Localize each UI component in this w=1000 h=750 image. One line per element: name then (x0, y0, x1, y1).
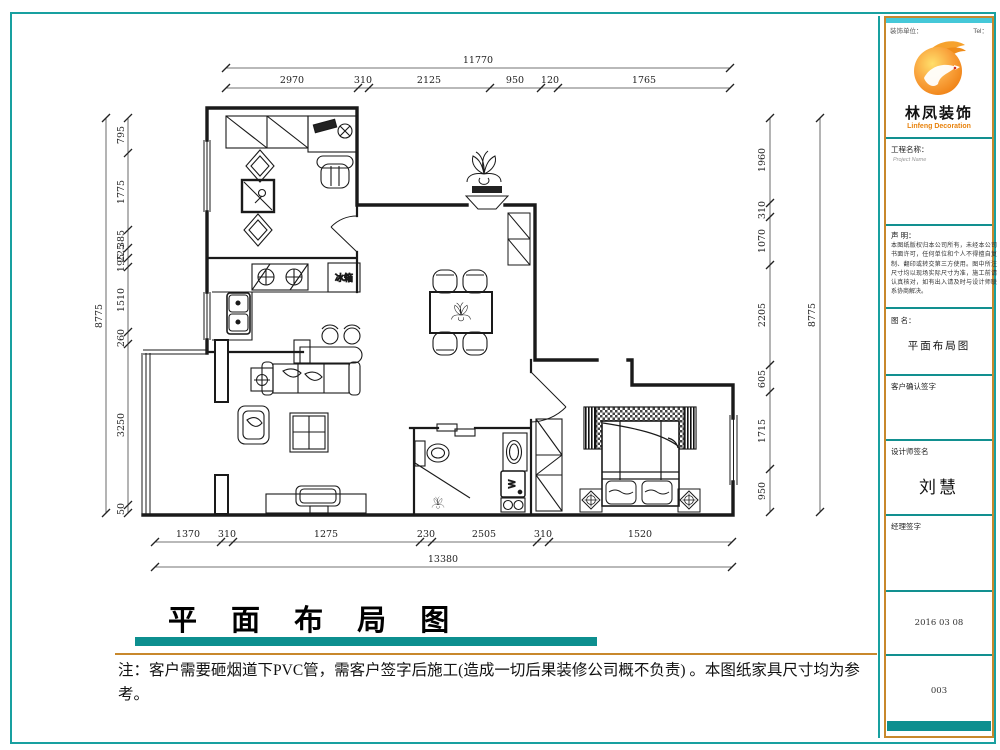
sliding-door-symbol (437, 424, 475, 436)
dim-label: 230 (417, 529, 435, 540)
desk-symbol (308, 116, 357, 152)
divider (886, 224, 992, 226)
floor-cushion-symbol (244, 150, 274, 246)
bedroom-wardrobe (536, 419, 562, 511)
divider (886, 654, 992, 656)
statement-text: 本图纸版权归本公司所有，未经本公司书面许可，任何单位和个人不得擅自复制、翻印或转… (886, 242, 1000, 298)
living-room (238, 362, 366, 513)
bar-stools-symbol (322, 325, 360, 344)
dim-label: 2970 (280, 75, 304, 86)
laundry-sink-symbol (501, 498, 525, 512)
dim-label: 8775 (94, 304, 105, 328)
divider (886, 374, 992, 376)
dining-chairs (433, 270, 487, 355)
dim-label: 8775 (807, 303, 818, 327)
dim-label: 260 (116, 329, 127, 347)
title-block-bottom-bar (887, 721, 991, 731)
dim-label: 1510 (116, 288, 127, 312)
dim-label: 50 (116, 503, 127, 515)
stove-symbol (252, 264, 308, 290)
shoe-cabinet (508, 213, 530, 265)
bedroom (580, 407, 700, 512)
wall-columns (215, 340, 228, 514)
study-room (226, 116, 357, 246)
armchair-symbol (238, 406, 269, 444)
dim-label: 120 (541, 75, 559, 86)
divider (886, 590, 992, 592)
dim-label: 1765 (632, 75, 656, 86)
title-block-top-strip (886, 18, 992, 23)
drawing-name-value: 平面布局图 (886, 338, 992, 353)
dim-label: 310 (354, 75, 372, 86)
logo-cn-text: 林凤装饰 (886, 102, 992, 123)
dim-label: 795 (116, 126, 127, 144)
drawing-name-label: 图 名： (886, 315, 1000, 326)
shower-divider (415, 463, 470, 498)
dim-label: 3250 (116, 413, 127, 437)
tv-cabinet-symbol (266, 486, 366, 513)
dim-label: 2505 (472, 529, 496, 540)
dim-label: 1715 (757, 419, 768, 443)
divider (886, 307, 992, 309)
divider (886, 137, 992, 139)
dim-label: 950 (506, 75, 524, 86)
floor-drain-icon (432, 497, 444, 509)
table-plant-icon (452, 302, 471, 320)
logo-phoenix-icon (910, 38, 968, 96)
bathroom: W (415, 424, 527, 512)
entry-area (466, 151, 530, 265)
divider (886, 439, 992, 441)
dim-label: 950 (757, 482, 768, 500)
interior-walls (207, 205, 531, 515)
entry-plant-icon (467, 151, 501, 184)
kitchen: 冰箱 (212, 263, 362, 363)
dim-label: 2205 (757, 303, 768, 327)
coffee-table-symbol (290, 413, 328, 452)
dim-label: 13380 (428, 554, 458, 565)
low-table-symbol (242, 180, 274, 212)
dim-label: 1070 (757, 229, 768, 253)
manager-sign-label: 经理签字 (886, 521, 1000, 532)
dining-area (430, 270, 492, 355)
dim-label: 1275 (314, 529, 338, 540)
title-block: 装饰单位： Tel： 林凤装饰 Linfeng D (884, 16, 994, 738)
dim-label: 310 (534, 529, 552, 540)
project-name-sub: Project Name (886, 157, 1000, 163)
statement-label: 声 明： (886, 230, 1000, 241)
fridge-label: 冰箱 (335, 272, 353, 283)
drawing-sheet: 冰箱 (0, 0, 1000, 750)
dim-label: 2125 (417, 75, 441, 86)
drawing-title-underline (135, 637, 597, 646)
dim-label: 310 (757, 201, 768, 219)
sheet-number: 003 (886, 686, 992, 696)
note-text: 注：客户需要砸烟道下PVC管，需客户签字后施工(造成一切后果装修公司概不负责) … (118, 659, 874, 707)
entry-door-leaf (472, 186, 502, 193)
customer-sign-label: 客户确认签字 (886, 381, 1000, 392)
footer-rule (115, 653, 877, 655)
sink-symbol (227, 293, 250, 334)
dim-label: 605 (757, 370, 768, 388)
office-chair-symbol (317, 156, 353, 188)
dim-label: 1520 (628, 529, 652, 540)
project-name-label: 工程名称： (886, 144, 1000, 155)
washer-label: W (507, 479, 517, 488)
designer-sign-label: 设计师签名 (886, 446, 1000, 457)
designer-signature: 刘慧 (886, 473, 992, 498)
dimension-lines (106, 68, 820, 567)
fridge-symbol: 冰箱 (328, 263, 360, 292)
dim-label: 11770 (463, 55, 493, 66)
dim-label: 195 (116, 254, 127, 272)
divider (886, 514, 992, 516)
dim-label: 1960 (757, 148, 768, 172)
drawing-title: 平 面 布 局 图 (168, 597, 462, 639)
tel-label: Tel： (973, 25, 988, 35)
washing-machine-symbol: W (501, 471, 525, 497)
dim-label: 1370 (176, 529, 200, 540)
dim-label: 1775 (116, 180, 127, 204)
wardrobe-symbol (226, 116, 308, 148)
door-swings (331, 216, 566, 422)
logo-en-text: Linfeng Decoration (886, 123, 992, 130)
washbasin-symbol (503, 433, 527, 471)
date-value: 2016 03 08 (886, 618, 992, 628)
entry-arrow-icon (466, 196, 508, 209)
company-unit-label: 装饰单位： (890, 25, 923, 35)
sofa-symbol (262, 362, 360, 395)
company-logo: 林凤装饰 Linfeng Decoration (886, 38, 992, 130)
toilet-symbol (415, 441, 449, 466)
dim-label: 310 (218, 529, 236, 540)
floor-plan: 冰箱 (0, 0, 880, 595)
